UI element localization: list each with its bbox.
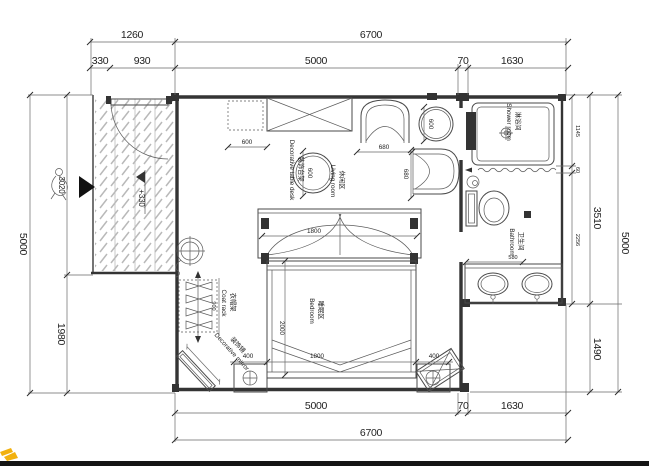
- armchair-top: [361, 100, 409, 143]
- curtain-arrow-icon: [465, 168, 472, 173]
- label-bedroom: 睡眠区 Bedroom: [308, 298, 325, 324]
- label-coat-rack: 衣帽架 Coat rack: [220, 290, 238, 318]
- level-text: +330: [137, 189, 146, 207]
- label-bedroom-zh: 睡眠区: [317, 301, 325, 320]
- dim-top-1260: 1260: [121, 29, 144, 41]
- dim-bed-1800: 1800: [310, 353, 325, 360]
- bed: [267, 261, 416, 378]
- dim-chair-680-w: 680: [379, 144, 390, 151]
- dim-coatrack-900: 900: [210, 301, 216, 310]
- dim-top-330: 330: [92, 55, 109, 67]
- dim-vanity-580: 580: [508, 255, 517, 261]
- dim-chair-680-d: 680: [402, 169, 409, 180]
- toilet: [466, 191, 509, 226]
- dim-bottom-6700: 6700: [360, 427, 383, 439]
- label-coatrack-zh: 衣帽架: [229, 293, 238, 313]
- label-living-en: Living room: [329, 165, 336, 198]
- label-coatrack-en: Coat rack: [220, 290, 227, 318]
- dim-left-3020: 3020: [57, 177, 66, 195]
- crossed-cabinet: [267, 98, 352, 131]
- ceiling-fan-symbol: [175, 236, 205, 277]
- toilet-paper-icon-inner: [473, 181, 478, 186]
- watermark-fragment: [0, 448, 18, 461]
- bathroom-wing: [465, 103, 562, 304]
- dim-right-60: 60: [574, 167, 580, 173]
- dim-bottom-5000: 5000: [305, 400, 328, 412]
- label-bathroom: 卫生间 Bathroom: [508, 228, 526, 255]
- dim-right-2256: 2256: [574, 234, 580, 246]
- label-living-zh: 休闲区: [338, 171, 347, 190]
- dim-top-70: 70: [457, 55, 469, 67]
- outdoor-unit: [416, 348, 464, 391]
- dim-decotable-600: 600: [306, 168, 313, 179]
- decorative-mirror: [175, 344, 222, 393]
- person-icon: [56, 169, 63, 176]
- door-jamb-left: [106, 96, 111, 104]
- dim-top-1630: 1630: [501, 55, 524, 67]
- dim-canopy-1800: 1800: [307, 228, 322, 235]
- wall-post: [460, 383, 469, 392]
- entry-deck: +330: [91, 95, 177, 273]
- dim-left-5000: 5000: [17, 233, 29, 256]
- footer-bar: [0, 461, 649, 466]
- dim-bed-2000: 2000: [278, 321, 285, 336]
- label-mirror: 装饰镜 Decorative mirror: [213, 324, 259, 372]
- dim-top-6700: 6700: [360, 29, 383, 41]
- label-living-room: 休闲区 Living room: [329, 165, 347, 198]
- wall-post: [427, 93, 437, 100]
- label-shower-room: 淋浴间 Shower room: [505, 103, 523, 140]
- dim-cabinet-600: 600: [242, 139, 253, 146]
- label-shower-en: Shower room: [505, 103, 512, 140]
- armchair-right: [413, 149, 459, 194]
- dim-right-3510: 3510: [591, 207, 603, 230]
- wall-post: [172, 384, 179, 392]
- living-area: [175, 98, 459, 277]
- dim-nightstand-right-400: 400: [429, 353, 440, 360]
- shower-door-leaf: [466, 112, 476, 150]
- bed-group: [234, 209, 450, 392]
- dim-top-5000: 5000: [305, 55, 328, 67]
- wall-post: [558, 94, 566, 101]
- label-bedroom-en: Bedroom: [308, 298, 315, 324]
- label-bathroom-en: Bathroom: [508, 228, 515, 255]
- dim-sidetable-600: 600: [427, 119, 434, 130]
- dim-bottom-70: 70: [457, 400, 469, 412]
- dim-top-930: 930: [134, 55, 151, 67]
- dim-bottom-1630: 1630: [501, 400, 524, 412]
- interior-dim-ticks: [225, 104, 526, 378]
- bed-canopy: [258, 209, 421, 264]
- floor-drain-icon: [524, 211, 531, 218]
- dim-right-1145: 1145: [574, 125, 580, 137]
- label-bathroom-zh: 卫生间: [517, 232, 526, 251]
- dim-right-1490: 1490: [591, 338, 603, 361]
- dim-right-5000: 5000: [619, 232, 631, 255]
- floor-plan-canvas: +330: [0, 0, 649, 473]
- label-decotable-zh: 装饰台架: [297, 157, 306, 183]
- dashed-cabinet: [228, 101, 263, 130]
- label-decotable-en: Decorative table desk: [288, 140, 295, 201]
- shower-curtain: [465, 168, 556, 173]
- vanity: [465, 264, 562, 304]
- label-shower-zh: 淋浴间: [514, 112, 523, 131]
- dim-left-1980: 1980: [55, 323, 67, 346]
